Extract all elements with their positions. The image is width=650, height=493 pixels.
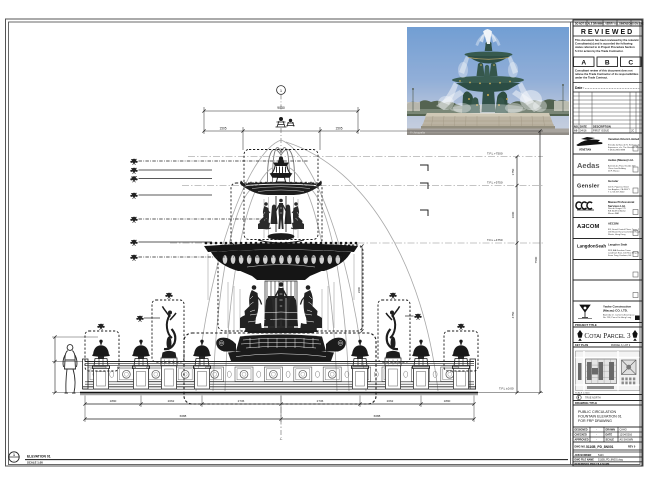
svg-text:7500: 7500 xyxy=(534,256,538,263)
svg-text:9030: 9030 xyxy=(277,106,285,110)
svg-text:Shatin, Hong Kong: Shatin, Hong Kong xyxy=(608,233,626,236)
svg-text:B: B xyxy=(605,59,610,66)
svg-text:Consultants(s) and is accorded: Consultants(s) and is accorded the follo… xyxy=(575,42,633,46)
svg-text:Gensler: Gensler xyxy=(608,179,619,183)
svg-text:CAHO: CAHO xyxy=(620,429,627,432)
svg-text:Edf. ACM 10 Andar: Edf. ACM 10 Andar xyxy=(608,209,626,212)
svg-text:DATE: DATE xyxy=(580,124,587,128)
svg-text:2736: 2736 xyxy=(317,399,324,403)
svg-text:A0: A0 xyxy=(574,128,578,132)
svg-text:5110B_PD_8N001.dwg: 5110B_PD_8N001.dwg xyxy=(598,459,623,462)
svg-text:DESCRIPTION: DESCRIPTION xyxy=(593,124,611,128)
svg-text:SCALE 1:2000: SCALE 1:2000 xyxy=(575,391,590,394)
svg-text:DWG FILE NAME: DWG FILE NAME xyxy=(575,459,595,462)
svg-text:COTAI PARCEL 3: COTAI PARCEL 3 xyxy=(584,332,631,340)
svg-text:4750: 4750 xyxy=(511,311,515,318)
svg-text:2062: 2062 xyxy=(387,399,394,403)
svg-text:Consultant review of this docu: Consultant review of this document does … xyxy=(575,69,633,73)
svg-text:AECOM: AECOM xyxy=(608,222,619,226)
svg-text:2062: 2062 xyxy=(168,399,175,403)
svg-text:Avenida da Praia Grande 409: Avenida da Praia Grande 409 xyxy=(608,164,636,167)
svg-text:ELEVATION 01: ELEVATION 01 xyxy=(27,455,51,459)
svg-text:SCALE 1:50: SCALE 1:50 xyxy=(27,460,43,464)
svg-text:138 Shatin Rural Committee Roa: 138 Shatin Rural Committee Road xyxy=(608,230,640,233)
svg-text:NO.: NO. xyxy=(574,124,579,128)
svg-text:REVIEWED: REVIEWED xyxy=(581,29,634,36)
svg-text:2400: 2400 xyxy=(357,286,361,293)
svg-text:C: C xyxy=(628,59,633,66)
svg-text:5103: 5103 xyxy=(598,454,604,457)
svg-text:Landmark East, 100 How Ming St: Landmark East, 100 How Ming St xyxy=(608,251,639,254)
svg-text:under the Trade Contract.: under the Trade Contract. xyxy=(575,76,608,80)
svg-text:T.F.L +7500: T.F.L +7500 xyxy=(487,152,503,156)
svg-text:Macau SAR: Macau SAR xyxy=(608,212,620,215)
svg-text:Esperanca, s/n, The Venetian M: Esperanca, s/n, The Venetian Macao xyxy=(608,146,643,149)
svg-text:Alameda Dr. Carlos D Assumpcao: Alameda Dr. Carlos D Assumpcao xyxy=(603,314,635,317)
svg-text:APPROVED: APPROVED xyxy=(575,439,589,442)
svg-text:KEY PLAN: KEY PLAN xyxy=(575,343,588,347)
svg-text:DATE: DATE xyxy=(606,434,613,437)
svg-text:VENETIAN: VENETIAN xyxy=(579,149,591,152)
svg-text:21/F, Macau: 21/F, Macau xyxy=(608,171,620,173)
svg-text:Aedas: Aedas xyxy=(577,161,600,170)
svg-text:DWG NO.: DWG NO. xyxy=(575,446,587,449)
svg-text:AƎCOM: AƎCOM xyxy=(577,224,600,230)
svg-text:REV 0: REV 0 xyxy=(628,446,636,449)
svg-text:No. 258, Praca Kin Heng Long: No. 258, Praca Kin Heng Long xyxy=(603,316,632,319)
svg-text:2736: 2736 xyxy=(238,399,245,403)
svg-text:T 1 213.327.3600: T 1 213.327.3600 xyxy=(608,192,625,194)
svg-text:Date :: Date : xyxy=(575,86,584,90)
svg-text:T.F.L ±0.00: T.F.L ±0.00 xyxy=(499,387,514,391)
svg-text:-: - xyxy=(14,459,15,463)
svg-text:1750: 1750 xyxy=(511,168,515,175)
svg-text:status referred to in Project: status referred to in Project Procedure … xyxy=(575,45,635,49)
svg-text:Kwun Tong, Kowloon, HK: Kwun Tong, Kowloon, HK xyxy=(608,255,632,257)
svg-text:DESIGNED: DESIGNED xyxy=(575,429,588,432)
svg-text:Langdon Seah: Langdon Seah xyxy=(608,243,628,247)
svg-text:Venetian Orient Limited: Venetian Orient Limited xyxy=(608,137,640,141)
svg-text:DRAWN: DRAWN xyxy=(606,429,616,432)
svg-text:1505: 1505 xyxy=(219,127,226,131)
svg-text:LangdonSeah: LangdonSeah xyxy=(577,244,606,249)
svg-text:DO NOT SCALE DRAWING. VERIFY A: DO NOT SCALE DRAWING. VERIFY ALL DIMENSI… xyxy=(575,22,644,25)
svg-text:This document has been reviewe: This document has been reviewed by the r… xyxy=(575,38,639,42)
svg-text:FOR FRP DRAWING: FOR FRP DRAWING xyxy=(578,419,612,423)
svg-text:T.F.L +4750: T.F.L +4750 xyxy=(487,238,503,242)
svg-text:PUBLIC CIRCULATION: PUBLIC CIRCULATION xyxy=(578,410,616,414)
svg-text:T (853) 2882 8888: T (853) 2882 8888 xyxy=(608,150,626,152)
svg-text:DRAWING TITLE: DRAWING TITLE xyxy=(575,401,597,405)
svg-text:5.4 for action by the Trade Co: 5.4 for action by the Trade Contractor. xyxy=(575,49,624,53)
svg-text:500 S. Figueroa Street: 500 S. Figueroa Street xyxy=(608,185,629,188)
svg-text:5110B_PD_8N001: 5110B_PD_8N001 xyxy=(586,445,614,449)
svg-text:1000: 1000 xyxy=(511,211,515,218)
svg-text:AS SHOWN: AS SHOWN xyxy=(620,439,634,442)
svg-text:relieve the Trade Contracto: relieve the Trade Contractor of its resp… xyxy=(575,72,639,76)
svg-text:JOB NUMBER: JOB NUMBER xyxy=(575,454,592,457)
svg-text:04/16: 04/16 xyxy=(580,128,587,132)
svg-text:1: 1 xyxy=(13,453,15,457)
svg-text:FIRST ISSUE: FIRST ISSUE xyxy=(593,128,609,132)
svg-text:Gensler: Gensler xyxy=(577,184,600,190)
svg-text:T.F.L +5750: T.F.L +5750 xyxy=(487,181,503,185)
svg-text:FOUNTAIN ELEVATION 01: FOUNTAIN ELEVATION 01 xyxy=(578,415,622,419)
svg-text:PARCEL 3, LOT 2: PARCEL 3, LOT 2 xyxy=(611,344,631,347)
svg-text:(Macau) CO. LTD.: (Macau) CO. LTD. xyxy=(603,308,628,312)
svg-text:JC: JC xyxy=(631,128,634,132)
svg-text:CHECKED: CHECKED xyxy=(575,434,588,437)
svg-text:TRUE NORTH: TRUE NORTH xyxy=(585,397,601,400)
svg-text:12/04/2016: 12/04/2016 xyxy=(620,434,633,437)
svg-text:SCALE: SCALE xyxy=(606,439,615,442)
svg-text:1505: 1505 xyxy=(335,127,342,131)
svg-text:Los Angeles, CA 90071: Los Angeles, CA 90071 xyxy=(608,188,630,191)
svg-text:PROJECT TITLE: PROJECT TITLE xyxy=(575,323,597,327)
svg-text:1890: 1890 xyxy=(444,399,451,403)
svg-text:6688: 6688 xyxy=(374,414,381,418)
svg-text:6688: 6688 xyxy=(180,414,187,418)
svg-text:REFERENCE DWG FILE NAME: REFERENCE DWG FILE NAME xyxy=(575,463,610,466)
svg-text:1890: 1890 xyxy=(110,399,117,403)
svg-text:Aedas (Macau) Ltd.: Aedas (Macau) Ltd. xyxy=(608,158,634,162)
svg-text:A: A xyxy=(581,59,586,66)
svg-text:38/F, AIA Kowloon Tower: 38/F, AIA Kowloon Tower xyxy=(608,249,631,252)
